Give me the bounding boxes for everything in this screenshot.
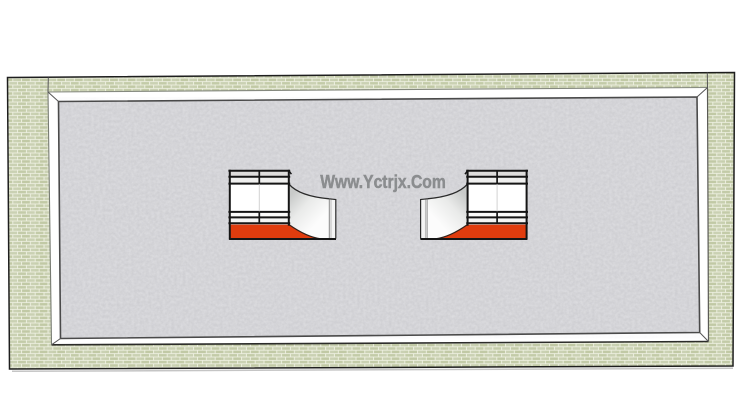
svg-text:Www.Yctrjx.Com: Www.Yctrjx.Com <box>320 172 446 192</box>
